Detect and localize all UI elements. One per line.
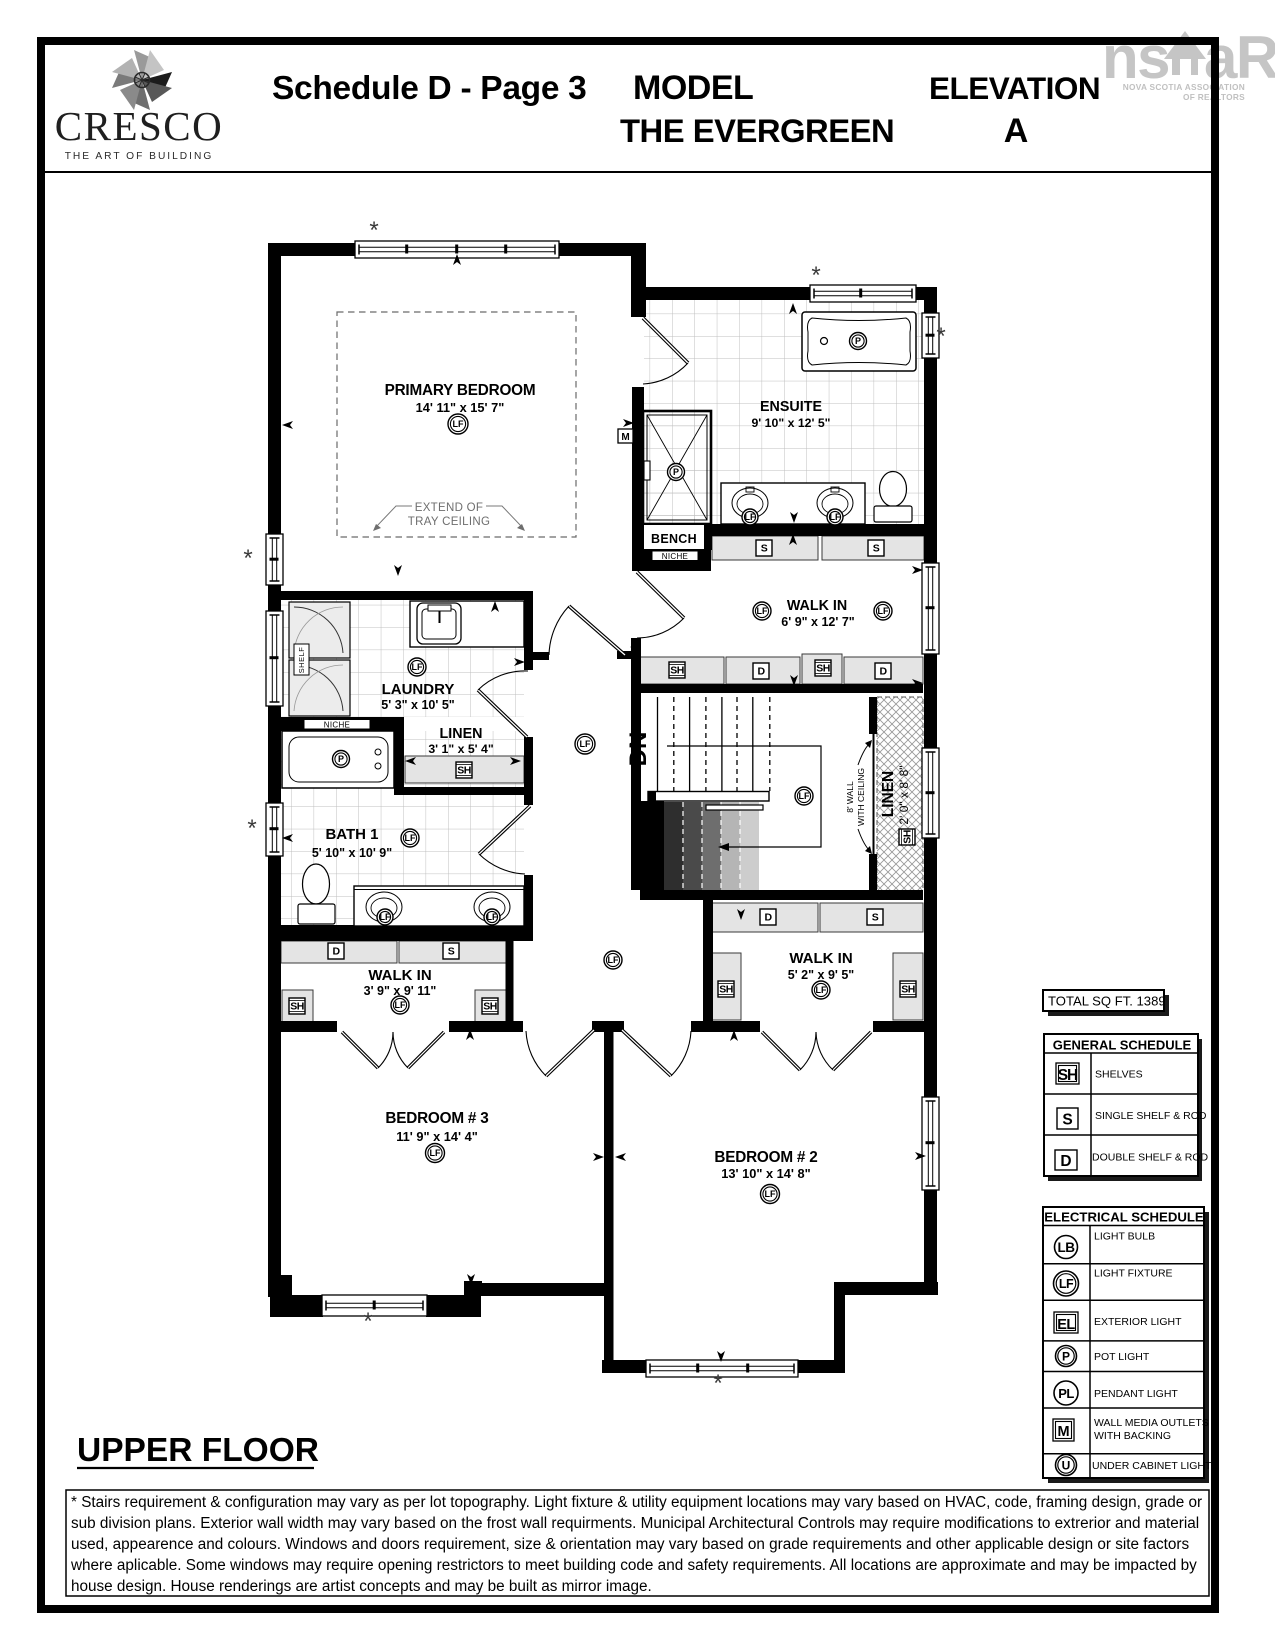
svg-text:SH: SH <box>290 1001 304 1013</box>
svg-text:9' 10" x 12' 5": 9' 10" x 12' 5" <box>751 416 830 430</box>
svg-text:PRIMARY BEDROOM: PRIMARY BEDROOM <box>385 382 536 399</box>
svg-text:PL: PL <box>1058 1386 1074 1401</box>
svg-text:LF: LF <box>580 739 591 749</box>
svg-text:UNDER CABINET LIGHT: UNDER CABINET LIGHT <box>1092 1460 1212 1472</box>
svg-text:EL: EL <box>1057 1317 1075 1333</box>
svg-text:3' 9" x 9' 11": 3' 9" x 9' 11" <box>364 984 437 998</box>
svg-text:LF: LF <box>430 1148 441 1158</box>
svg-text:LF: LF <box>816 985 827 995</box>
svg-text:P: P <box>338 754 344 764</box>
svg-text:M: M <box>621 432 629 443</box>
svg-text:ns: ns <box>1102 24 1169 91</box>
svg-text:D: D <box>764 912 772 924</box>
svg-text:S: S <box>1062 1112 1072 1129</box>
svg-text:2' 0" x 8' 8": 2' 0" x 8' 8" <box>897 765 911 824</box>
svg-text:*: * <box>243 545 252 572</box>
svg-text:LINEN: LINEN <box>880 771 897 818</box>
svg-text:P: P <box>673 467 679 477</box>
svg-text:PENDANT LIGHT: PENDANT LIGHT <box>1094 1388 1178 1400</box>
svg-text:LF: LF <box>1059 1277 1074 1291</box>
svg-text:6' 9" x 12' 7": 6' 9" x 12' 7" <box>781 615 854 629</box>
svg-text:LF: LF <box>453 419 464 429</box>
svg-text:5' 2" x 9' 5": 5' 2" x 9' 5" <box>788 968 855 982</box>
svg-text:11' 9" x 14' 4": 11' 9" x 14' 4" <box>396 1129 478 1144</box>
svg-text:P: P <box>1062 1350 1070 1364</box>
svg-text:S: S <box>873 543 880 555</box>
svg-text:D: D <box>1060 1153 1071 1170</box>
svg-text:house design. House renderings: house design. House renderings are artis… <box>71 1578 652 1595</box>
svg-text:BEDROOM # 3: BEDROOM # 3 <box>385 1110 488 1127</box>
svg-text:THE EVERGREEN: THE EVERGREEN <box>620 112 894 149</box>
svg-text:SH: SH <box>816 663 830 675</box>
svg-text:LIGHT FIXTURE: LIGHT FIXTURE <box>1094 1268 1173 1280</box>
svg-text:LB: LB <box>1058 1240 1076 1255</box>
svg-text:ELECTRICAL SCHEDULE: ELECTRICAL SCHEDULE <box>1044 1210 1204 1225</box>
svg-text:SH: SH <box>457 765 471 777</box>
svg-text:DN: DN <box>625 732 652 767</box>
svg-text:M: M <box>1057 1424 1069 1440</box>
svg-text:NICHE: NICHE <box>662 552 688 561</box>
svg-text:WALL MEDIA OUTLETS: WALL MEDIA OUTLETS <box>1094 1417 1209 1429</box>
svg-text:SH: SH <box>902 830 914 844</box>
svg-text:LF: LF <box>757 606 768 616</box>
svg-text:WALK IN: WALK IN <box>368 967 431 984</box>
svg-text:WALK IN: WALK IN <box>787 598 847 614</box>
svg-text:LF: LF <box>745 512 756 522</box>
svg-text:LF: LF <box>608 955 619 965</box>
svg-text:LF: LF <box>380 912 391 922</box>
svg-text:P: P <box>855 336 861 346</box>
svg-text:LF: LF <box>405 833 416 843</box>
svg-text:SH: SH <box>901 984 915 996</box>
svg-text:*: * <box>369 217 378 244</box>
svg-text:DOUBLE SHELF & ROD: DOUBLE SHELF & ROD <box>1092 1152 1209 1164</box>
svg-text:D: D <box>332 946 340 958</box>
svg-text:LF: LF <box>830 512 841 522</box>
svg-text:LINEN: LINEN <box>440 726 483 742</box>
svg-text:5' 3" x 10' 5": 5' 3" x 10' 5" <box>381 698 454 712</box>
svg-text:where aplicable. Some windows: where aplicable. Some windows may requir… <box>70 1557 1197 1574</box>
svg-text:LIGHT BULB: LIGHT BULB <box>1094 1231 1155 1243</box>
svg-text:POT LIGHT: POT LIGHT <box>1094 1351 1150 1363</box>
svg-text:TOTAL SQ FT. 1389: TOTAL SQ FT. 1389 <box>1048 994 1166 1009</box>
svg-text:SHELVES: SHELVES <box>1095 1069 1143 1081</box>
svg-text:SH: SH <box>1058 1067 1078 1084</box>
svg-text:SH: SH <box>670 665 684 677</box>
svg-text:S: S <box>761 543 768 555</box>
svg-text:*: * <box>363 1308 372 1335</box>
svg-text:UPPER FLOOR: UPPER FLOOR <box>77 1432 319 1469</box>
svg-text:EXTEND OF: EXTEND OF <box>415 502 484 514</box>
svg-text:SHELF: SHELF <box>297 647 306 674</box>
svg-text:* Stairs requirement & configu: * Stairs requirement & configuration may… <box>71 1494 1202 1511</box>
svg-text:WITH BACKING: WITH BACKING <box>1094 1430 1171 1442</box>
svg-text:CRESCO: CRESCO <box>55 103 224 149</box>
svg-text:LF: LF <box>799 791 810 801</box>
svg-text:NICHE: NICHE <box>324 721 350 730</box>
svg-text:*: * <box>713 1370 722 1397</box>
svg-text:ELEVATION: ELEVATION <box>929 70 1100 106</box>
svg-text:D: D <box>757 666 765 678</box>
svg-text:A: A <box>1004 112 1029 150</box>
svg-text:13' 10" x 14' 8": 13' 10" x 14' 8" <box>721 1166 810 1181</box>
svg-text:BEDROOM # 2: BEDROOM # 2 <box>714 1149 817 1166</box>
svg-text:WITH CEILING: WITH CEILING <box>856 768 866 826</box>
svg-text:LAUNDRY: LAUNDRY <box>382 681 455 698</box>
svg-text:5' 10" x 10' 9": 5' 10" x 10' 9" <box>312 846 392 860</box>
svg-text:GENERAL SCHEDULE: GENERAL SCHEDULE <box>1053 1038 1192 1053</box>
svg-text:14' 11" x 15' 7": 14' 11" x 15' 7" <box>416 400 505 415</box>
svg-text:LF: LF <box>395 1000 406 1010</box>
svg-text:EXTERIOR LIGHT: EXTERIOR LIGHT <box>1094 1316 1182 1328</box>
svg-text:BENCH: BENCH <box>651 532 697 546</box>
svg-text:SH: SH <box>483 1001 497 1013</box>
svg-text:THE ART OF BUILDING: THE ART OF BUILDING <box>65 151 214 162</box>
svg-text:LF: LF <box>765 1189 776 1199</box>
svg-text:LF: LF <box>878 606 889 616</box>
svg-text:sub division plans. Exterior w: sub division plans. Exterior wall width … <box>71 1515 1199 1532</box>
svg-text:D: D <box>879 666 887 678</box>
svg-text:TRAY CEILING: TRAY CEILING <box>408 516 490 528</box>
svg-text:BATH 1: BATH 1 <box>325 826 378 843</box>
svg-text:MODEL: MODEL <box>633 69 753 107</box>
svg-text:WALK IN: WALK IN <box>789 950 852 967</box>
svg-text:SINGLE SHELF & ROD: SINGLE SHELF & ROD <box>1095 1110 1207 1122</box>
svg-text:*: * <box>811 262 820 289</box>
svg-text:*: * <box>247 815 256 842</box>
svg-text:U: U <box>1062 1459 1071 1473</box>
svg-text:used, appearence and colours.: used, appearence and colours. Windows an… <box>71 1536 1190 1553</box>
svg-text:S: S <box>872 912 879 924</box>
svg-text:S: S <box>448 946 455 958</box>
svg-text:8' WALL: 8' WALL <box>845 781 855 813</box>
svg-text:ENSUITE: ENSUITE <box>760 399 822 415</box>
svg-text:NOVA SCOTIA ASSOCIATION: NOVA SCOTIA ASSOCIATION <box>1123 82 1245 92</box>
svg-text:LF: LF <box>487 912 498 922</box>
svg-text:SH: SH <box>719 984 733 996</box>
svg-text:Schedule D - Page 3: Schedule D - Page 3 <box>272 70 587 107</box>
svg-text:LF: LF <box>412 662 423 672</box>
svg-text:*: * <box>936 323 945 350</box>
svg-text:3' 1" x 5' 4": 3' 1" x 5' 4" <box>428 742 494 756</box>
